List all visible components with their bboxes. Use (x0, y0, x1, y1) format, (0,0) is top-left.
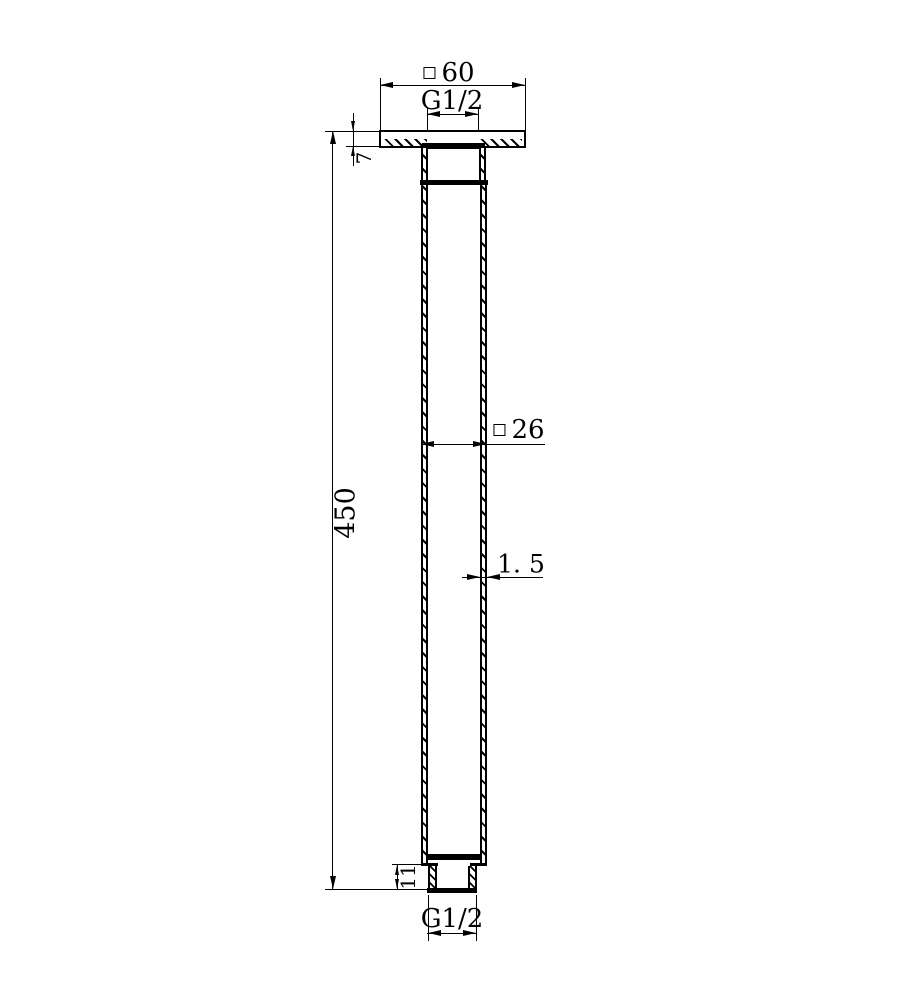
dim-wall-thickness-value: 1. 5 (497, 552, 545, 577)
dim-flange-thickness-arrow-top (351, 121, 355, 131)
bottom-fitting-wall-right (468, 866, 477, 890)
dim-top-thread-value: G1/2 (421, 88, 484, 114)
flange-hatch-right (480, 139, 522, 146)
bottom-fitting-wall-left (428, 866, 437, 890)
dim-top-width-value: 60 (441, 60, 474, 86)
dim-wall-thickness-arrow-left (467, 574, 480, 580)
flange-hatch-left (384, 139, 427, 146)
dim-top-thread-label: G1/2 (421, 88, 484, 114)
technical-drawing: 60 G1/2 7 450 26 1. 5 11 (0, 0, 900, 1000)
dim-fitting-height-value: 11 (396, 864, 420, 889)
dim-bottom-thread-value: G1/2 (421, 906, 484, 932)
dim-tube-width-label: 26 (493, 417, 544, 443)
dim-bottom-thread-label: G1/2 (421, 906, 484, 932)
square-symbol-icon (423, 67, 435, 79)
dim-flange-thickness-label: 7 (354, 152, 374, 165)
arm-tube-bottom-edge (426, 854, 482, 860)
dim-length-label: 450 (333, 487, 360, 539)
dim-top-width-arrow-left (380, 82, 393, 88)
connector-nut-wall-left (421, 148, 428, 182)
dim-tube-width-value: 26 (511, 417, 544, 443)
dim-length-arrow-bottom (330, 876, 336, 889)
dim-fitting-height-label: 11 (398, 864, 418, 889)
dim-top-width-label: 60 (423, 60, 474, 86)
dim-tube-width-arrow-right (473, 441, 486, 447)
arm-tube-wall-left (421, 185, 428, 864)
dim-length-arrow-top (330, 131, 336, 144)
connector-nut-wall-right (479, 148, 486, 182)
arm-tube-wall-right (480, 185, 487, 864)
connector-nut-top-edge (422, 143, 485, 149)
bottom-fitting-bottom-edge (427, 888, 477, 893)
dim-flange-thickness-value: 7 (352, 152, 376, 165)
connector-nut-shoulder (420, 180, 488, 185)
dim-wall-thickness-label: 1. 5 (497, 552, 545, 577)
dim-top-width-arrow-right (512, 82, 525, 88)
square-symbol-icon (493, 424, 505, 436)
dim-tube-width-arrow-left (421, 441, 434, 447)
dim-length-value: 450 (331, 487, 362, 539)
